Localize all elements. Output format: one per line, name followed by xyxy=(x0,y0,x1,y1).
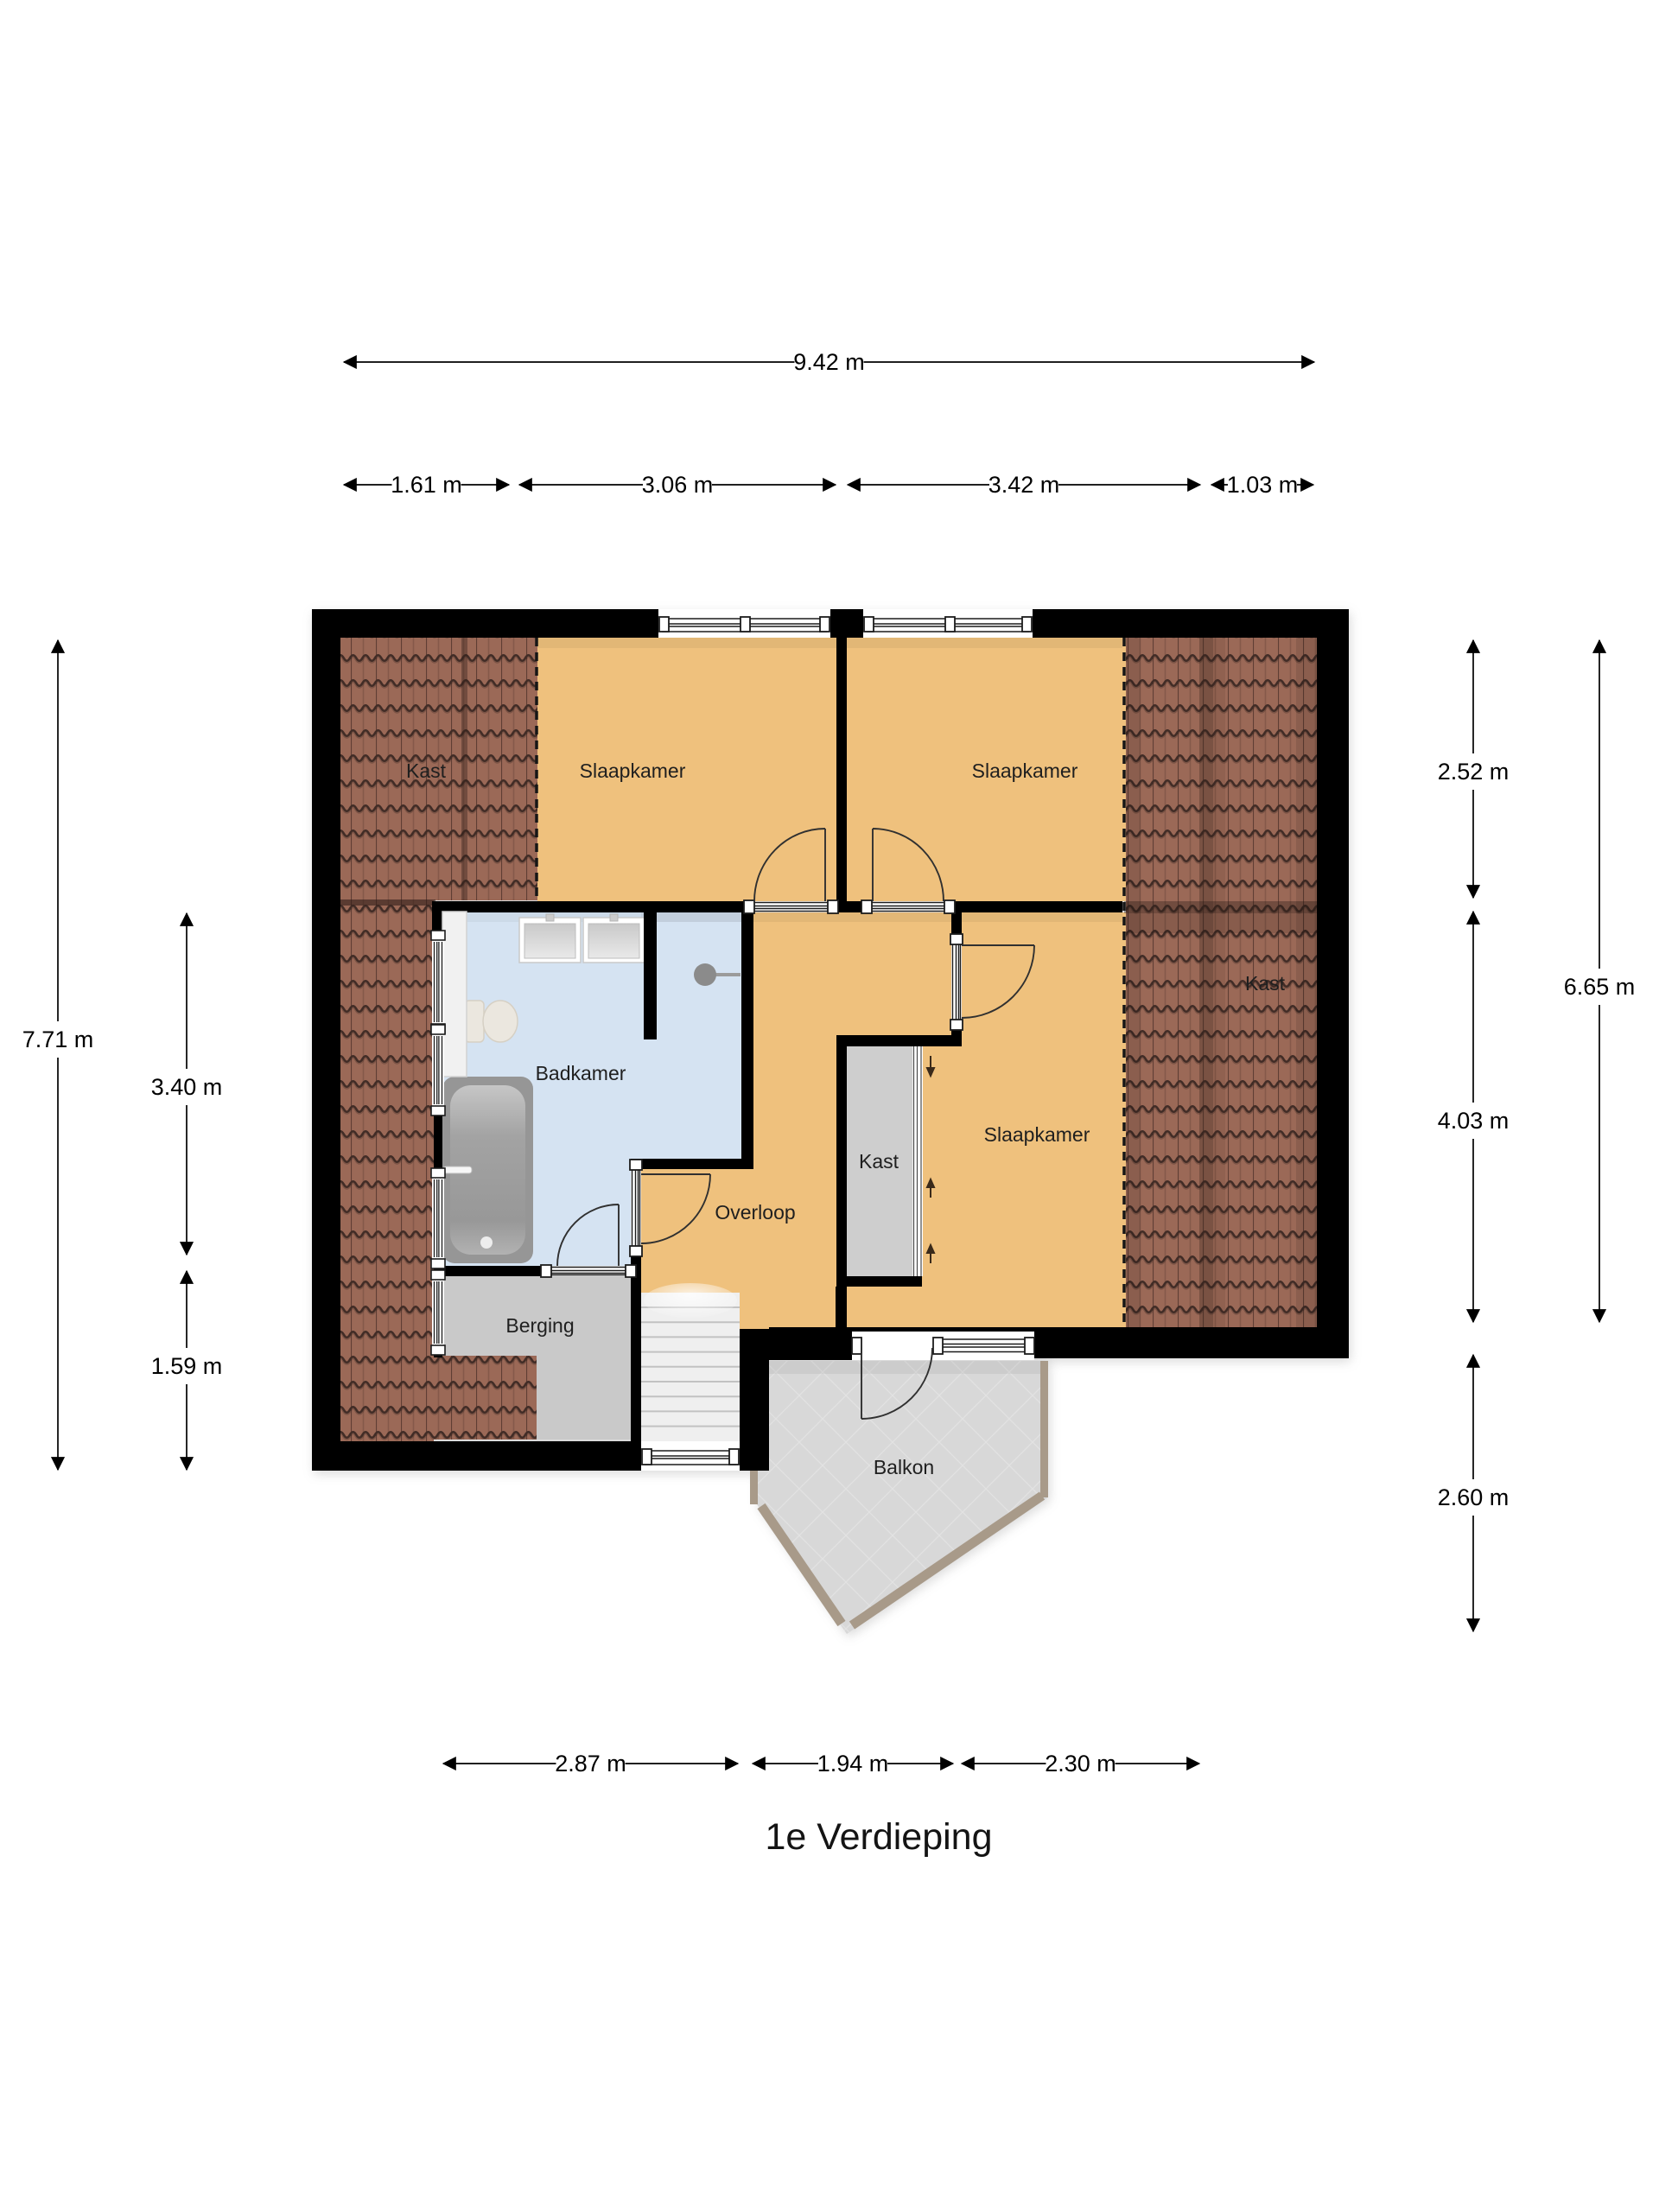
svg-text:Kast: Kast xyxy=(406,760,447,782)
svg-text:Kast: Kast xyxy=(1245,972,1286,995)
svg-text:2.30 m: 2.30 m xyxy=(1045,1751,1116,1777)
svg-text:1.94 m: 1.94 m xyxy=(817,1751,889,1777)
svg-text:6.65 m: 6.65 m xyxy=(1564,974,1636,1000)
svg-text:Slaapkamer: Slaapkamer xyxy=(580,760,686,782)
svg-text:1.03 m: 1.03 m xyxy=(1227,472,1299,498)
svg-text:1e Verdieping: 1e Verdieping xyxy=(766,1816,993,1858)
svg-text:Slaapkamer: Slaapkamer xyxy=(972,760,1078,782)
svg-text:2.52 m: 2.52 m xyxy=(1438,759,1510,785)
svg-text:Kast: Kast xyxy=(859,1150,899,1173)
svg-text:7.71 m: 7.71 m xyxy=(22,1027,94,1052)
svg-text:Slaapkamer: Slaapkamer xyxy=(984,1123,1090,1146)
svg-text:1.61 m: 1.61 m xyxy=(391,472,462,498)
svg-text:Badkamer: Badkamer xyxy=(536,1062,626,1084)
svg-text:3.06 m: 3.06 m xyxy=(642,472,714,498)
svg-text:Berging: Berging xyxy=(505,1314,574,1337)
svg-text:Overloop: Overloop xyxy=(715,1201,795,1224)
svg-text:2.60 m: 2.60 m xyxy=(1438,1484,1510,1510)
svg-text:9.42 m: 9.42 m xyxy=(793,349,865,375)
svg-text:3.40 m: 3.40 m xyxy=(151,1074,223,1100)
svg-text:4.03 m: 4.03 m xyxy=(1438,1108,1510,1134)
svg-text:2.87 m: 2.87 m xyxy=(555,1751,626,1777)
svg-text:3.42 m: 3.42 m xyxy=(988,472,1060,498)
svg-text:Balkon: Balkon xyxy=(874,1456,934,1478)
svg-text:1.59 m: 1.59 m xyxy=(151,1353,223,1379)
